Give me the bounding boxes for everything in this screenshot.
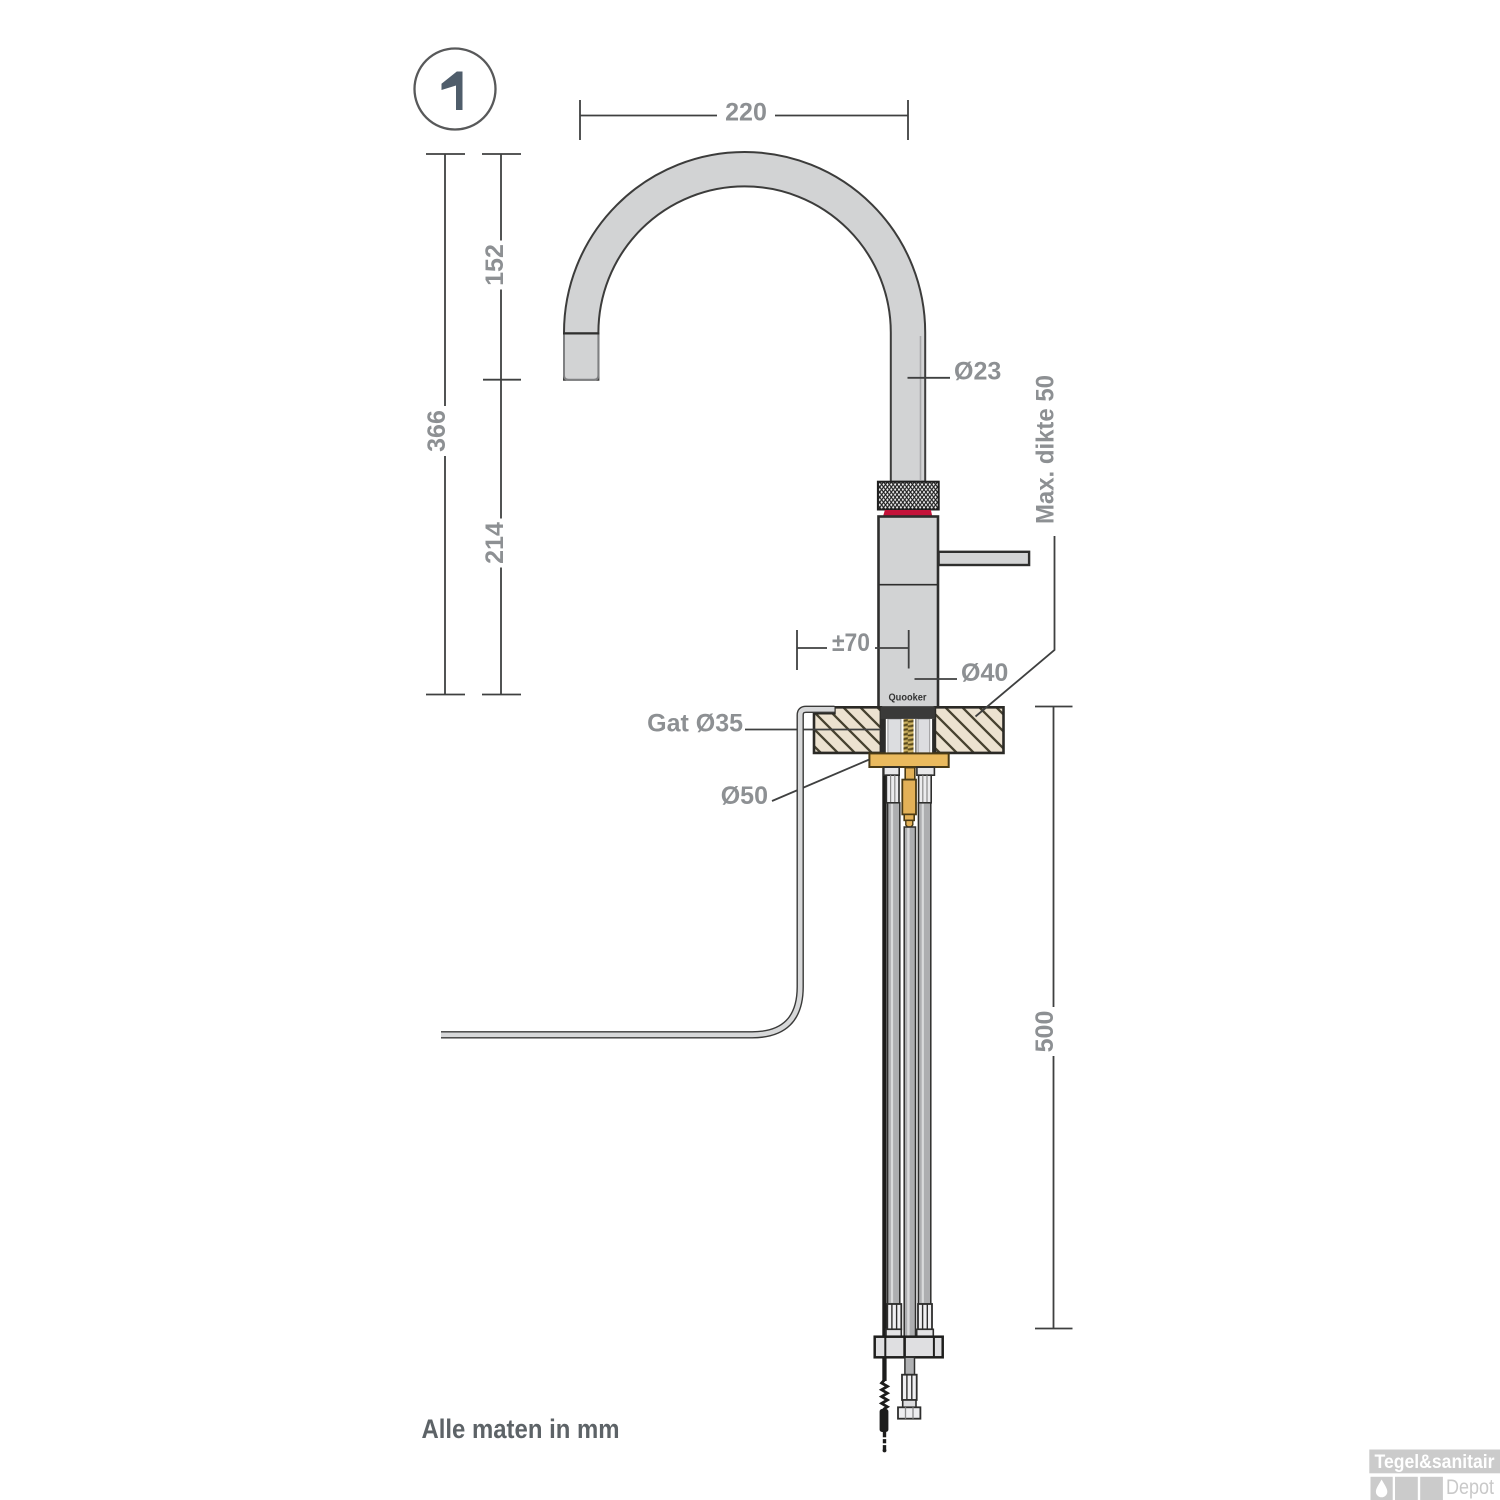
svg-text:Tegel&sanitair: Tegel&sanitair: [1375, 1452, 1496, 1473]
svg-text:214: 214: [481, 522, 509, 564]
svg-text:Max. dikte 50: Max. dikte 50: [1032, 375, 1060, 524]
svg-text:Ø50: Ø50: [721, 782, 768, 810]
svg-text:500: 500: [1031, 1011, 1059, 1053]
svg-text:152: 152: [481, 244, 509, 286]
svg-text:Gat Ø35: Gat Ø35: [647, 710, 743, 738]
svg-text:Ø23: Ø23: [954, 358, 1001, 386]
svg-text:366: 366: [423, 410, 451, 452]
svg-text:220: 220: [725, 99, 767, 127]
svg-text:Alle maten in mm: Alle maten in mm: [422, 1414, 620, 1444]
svg-text:Depot: Depot: [1446, 1476, 1494, 1499]
svg-text:±70: ±70: [832, 629, 870, 657]
svg-text:Ø40: Ø40: [961, 659, 1008, 687]
svg-text:Quooker: Quooker: [889, 692, 927, 704]
